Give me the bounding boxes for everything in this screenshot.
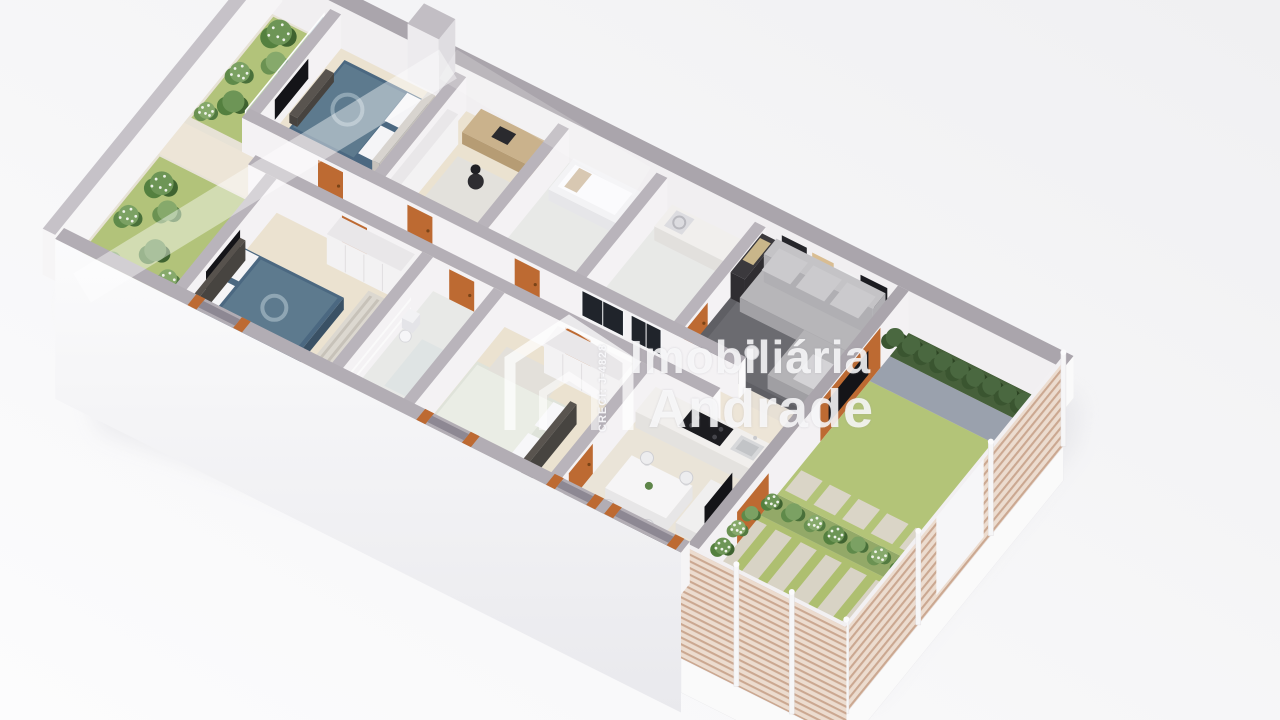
scene-dot	[689, 423, 694, 428]
scene-dot	[719, 427, 724, 432]
floorplan-3d-render	[0, 0, 1280, 720]
scene-dot	[712, 435, 717, 440]
scene-post	[915, 528, 921, 625]
floorplan-image: CRECI: J-4828 Imobiliária Andrade	[0, 0, 1280, 720]
scene-dot	[471, 164, 481, 174]
side-table	[745, 346, 759, 360]
scene-post	[1060, 349, 1066, 446]
scene-dot	[645, 482, 653, 490]
toilet	[399, 330, 411, 342]
scene-dot	[695, 415, 700, 420]
scene-post	[789, 589, 795, 714]
office-chair	[468, 173, 484, 189]
scene-post	[733, 561, 739, 686]
scene-dot	[753, 436, 757, 440]
scene-post	[988, 439, 994, 536]
